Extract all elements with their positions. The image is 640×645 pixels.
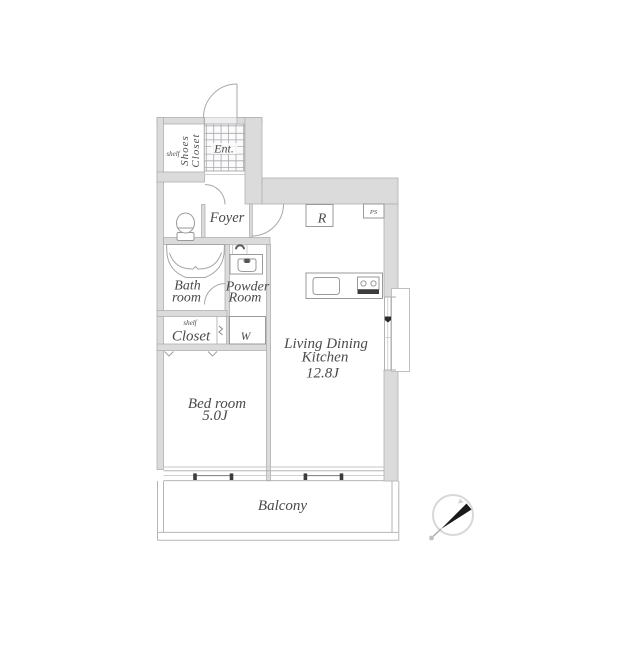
svg-text:Closet: Closet	[190, 133, 202, 167]
svg-text:Kitchen: Kitchen	[301, 350, 349, 366]
svg-text:room: room	[172, 291, 201, 306]
svg-text:W: W	[241, 331, 252, 343]
svg-text:Balcony: Balcony	[258, 498, 307, 514]
svg-text:shelf: shelf	[166, 150, 180, 158]
svg-text:R: R	[317, 212, 327, 227]
svg-text:Ent.: Ent.	[213, 142, 234, 156]
svg-text:5.0J: 5.0J	[202, 408, 229, 424]
svg-text:Room: Room	[228, 291, 262, 306]
svg-text:PS: PS	[369, 209, 378, 216]
svg-text:12.8J: 12.8J	[306, 366, 340, 382]
svg-text:Closet: Closet	[172, 329, 211, 345]
svg-text:Foyer: Foyer	[209, 210, 245, 226]
svg-text:shelf: shelf	[183, 319, 197, 327]
